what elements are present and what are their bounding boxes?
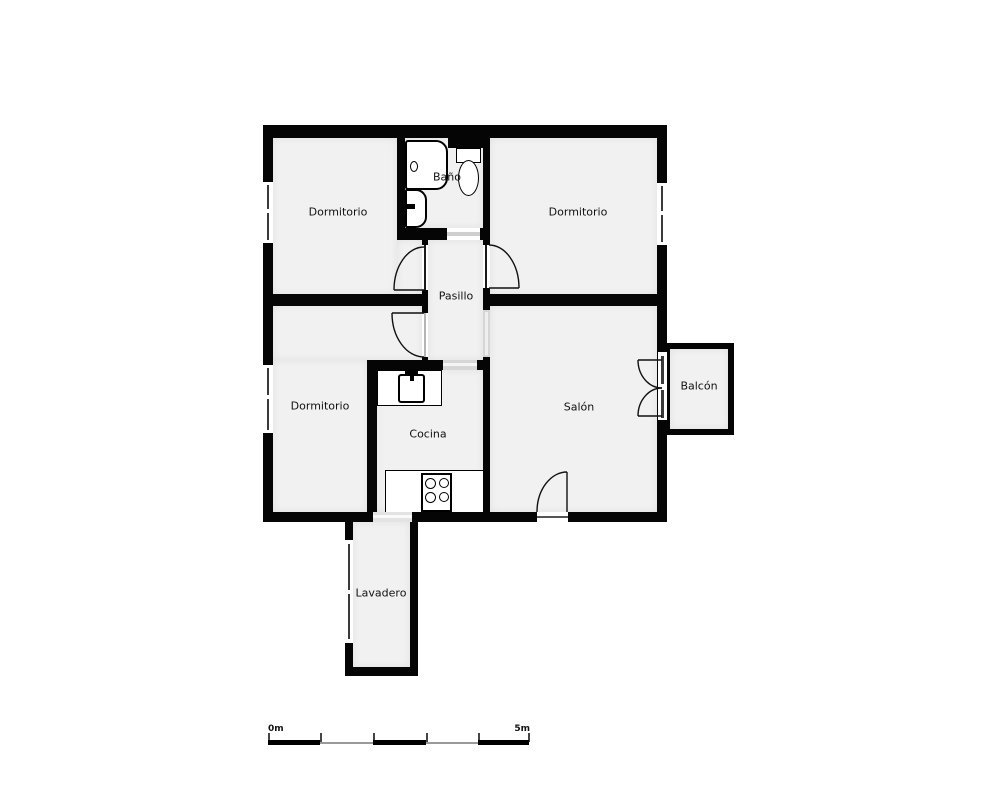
room-label-dormitorio-bottom-left: Dormitorio (291, 400, 350, 413)
doorway-threshold (447, 232, 480, 236)
room-label-bano: Baño (433, 171, 461, 184)
scale-bar: 0m 5m (268, 724, 530, 750)
balcony-door-glass (661, 390, 664, 418)
washbasin-tap-icon (406, 204, 415, 209)
window-glass-line (661, 186, 663, 211)
doorway-threshold (373, 515, 412, 518)
stove-burner-icon (439, 478, 449, 488)
window-glass-line (267, 399, 269, 430)
stove-burner-icon (425, 478, 436, 489)
stove-burner-icon (439, 492, 449, 502)
scale-tick (320, 733, 322, 742)
room-label-pasillo: Pasillo (439, 290, 474, 303)
room-label-dormitorio-top-left: Dormitorio (309, 206, 368, 219)
window-glass-line (348, 544, 350, 590)
scale-segment (426, 742, 478, 744)
scale-segment (268, 740, 320, 745)
balcony-door-glass (661, 356, 664, 384)
duct-shaft (448, 138, 483, 148)
stove-burner-icon (425, 492, 436, 503)
window-glass-line (267, 213, 269, 240)
floor-plan-canvas: Dormitorio Baño Dormitorio Pasillo Dormi… (0, 0, 1000, 800)
room-floor-dormitorio-bottom-left (273, 360, 367, 512)
room-label-balcon: Balcón (680, 380, 717, 393)
door-leaf (424, 245, 426, 290)
window-glass-line (348, 594, 350, 639)
window-glass-line (267, 185, 269, 209)
door-leaf (424, 313, 426, 357)
scale-start-label: 0m (268, 724, 284, 734)
window-glass-line (267, 368, 269, 395)
window-glass-line (661, 215, 663, 242)
doorway-threshold (485, 312, 488, 355)
room-label-salon: Salón (564, 401, 594, 414)
scale-segment (478, 740, 529, 745)
bathtub-drain-icon (410, 161, 418, 172)
scale-segment (320, 742, 373, 744)
kitchen-tap-icon (410, 374, 414, 381)
room-label-lavadero: Lavadero (356, 587, 407, 600)
door-sill (537, 516, 568, 518)
doorway-threshold (443, 363, 477, 366)
toilet-bowl-icon (458, 160, 479, 196)
room-label-cocina: Cocina (409, 428, 446, 441)
room-floor-dormitorio-bottom-left-ext (273, 306, 422, 360)
scale-tick (426, 733, 428, 742)
room-floor-dormitorio-top-left-ext (397, 240, 422, 294)
door-leaf (485, 245, 487, 288)
room-label-dormitorio-top-right: Dormitorio (549, 206, 608, 219)
scale-segment (373, 740, 426, 745)
